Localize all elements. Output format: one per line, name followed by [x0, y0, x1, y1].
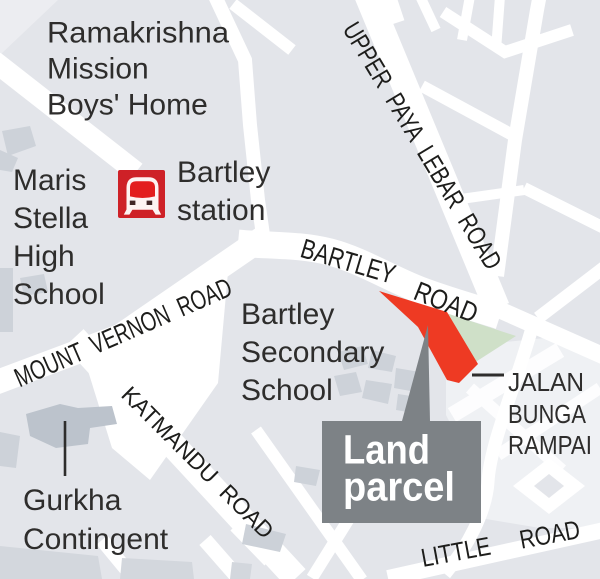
svg-text:Maris: Maris [13, 164, 86, 197]
svg-text:Bartley: Bartley [241, 298, 334, 331]
svg-text:Bartley: Bartley [177, 156, 270, 189]
svg-text:School: School [13, 278, 105, 311]
svg-text:Ramakrishna: Ramakrishna [47, 17, 229, 50]
svg-text:station: station [177, 194, 265, 227]
svg-text:Gurkha: Gurkha [23, 484, 122, 517]
svg-text:RAMPAI: RAMPAI [508, 430, 592, 460]
svg-text:JALAN: JALAN [508, 367, 584, 397]
svg-text:parcel: parcel [343, 464, 455, 510]
svg-text:BUNGA: BUNGA [508, 399, 587, 429]
svg-text:School: School [241, 374, 333, 407]
svg-text:Stella: Stella [13, 202, 88, 235]
svg-text:Contingent: Contingent [23, 523, 169, 556]
svg-text:Mission: Mission [47, 53, 149, 86]
svg-text:High: High [13, 240, 75, 273]
svg-text:Secondary: Secondary [241, 336, 384, 369]
svg-text:Boys' Home: Boys' Home [47, 89, 208, 122]
